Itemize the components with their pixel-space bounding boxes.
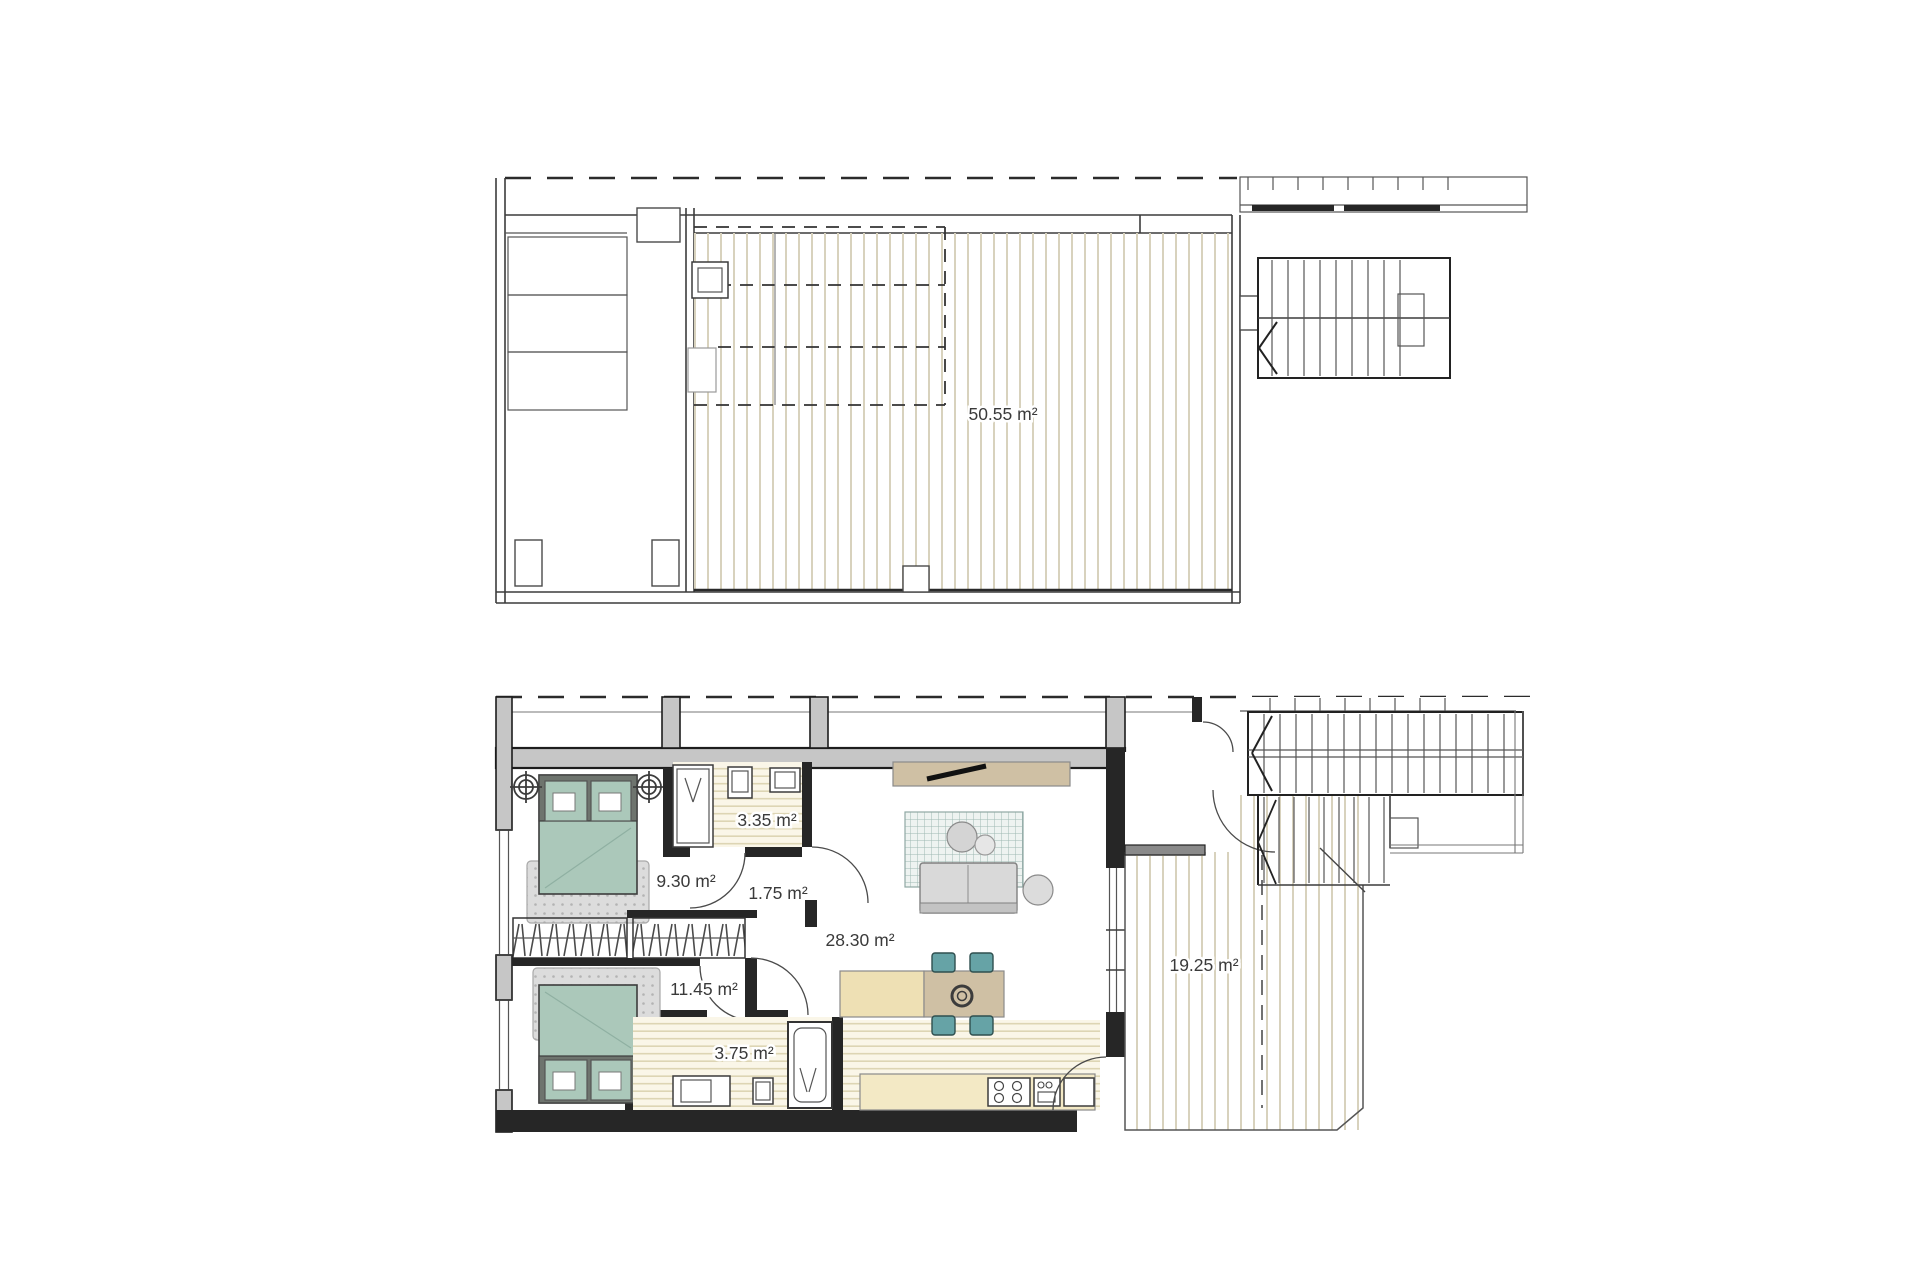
roof-storage-stack xyxy=(508,237,627,410)
room-area-label-terrace: 19.25 m² xyxy=(1169,955,1238,975)
lower-top-wall xyxy=(496,697,1202,768)
wall-junction-box xyxy=(637,208,680,242)
bathtub xyxy=(788,1022,832,1108)
floor-plan-canvas: 50.55 m² xyxy=(0,0,1920,1280)
room-area-label-hall: 1.75 m² xyxy=(748,883,807,903)
bottom-exterior-wall xyxy=(496,1110,1077,1132)
dining-table xyxy=(924,971,1004,1017)
kitchen-island xyxy=(840,971,924,1017)
stove xyxy=(988,1078,1030,1106)
kitchen xyxy=(840,953,1100,1110)
room-area-label-living: 28.30 m² xyxy=(825,930,894,950)
dressing-room xyxy=(673,762,802,847)
room-area-label-dressing: 3.35 m² xyxy=(737,810,796,830)
dressing-wardrobe xyxy=(673,765,713,847)
sofa xyxy=(920,863,1017,913)
washing-machine xyxy=(673,1076,730,1106)
room-area-label-roof-terrace: 50.55 m² xyxy=(968,404,1037,424)
window-bedroom-2 xyxy=(496,1000,512,1090)
deck-hatch-box xyxy=(903,566,929,592)
main-floor-plan: 9.30 m² 3.35 m² 1.75 m² 28.30 m² 11.45 m… xyxy=(496,697,1530,1132)
upper-balcony-rail xyxy=(1240,177,1527,212)
tv-sideboard xyxy=(893,762,1070,786)
door-arc-living xyxy=(812,847,868,903)
roof-vent-left xyxy=(515,540,542,586)
coffee-table xyxy=(947,822,977,852)
door-arc-entrance xyxy=(1203,722,1233,752)
upper-staircase xyxy=(1240,258,1450,378)
room-area-label-bathroom: 3.75 m² xyxy=(714,1043,773,1063)
side-table xyxy=(1023,875,1053,905)
room-area-label-bedroom-1: 9.30 m² xyxy=(656,871,715,891)
left-exterior-wall xyxy=(496,697,512,1132)
ceiling-light-icon xyxy=(510,771,542,803)
door-arc-kitchen xyxy=(751,958,808,1015)
living-room xyxy=(893,762,1070,913)
coffee-table-small xyxy=(975,835,995,855)
room-area-label-bedroom-2: 11.45 m² xyxy=(670,979,738,999)
kitchen-appliance xyxy=(1064,1078,1094,1106)
bedroom-1-bed xyxy=(539,775,637,894)
roof-vent-right xyxy=(652,540,679,586)
floor-plan-drawing: 50.55 m² xyxy=(0,0,1920,1280)
window-bedroom-1 xyxy=(496,830,512,955)
bathroom-sink xyxy=(753,1078,773,1104)
bedroom-2-bed xyxy=(539,985,637,1103)
upper-floor-plan: 50.55 m² xyxy=(496,177,1527,603)
bathroom xyxy=(633,1017,832,1110)
